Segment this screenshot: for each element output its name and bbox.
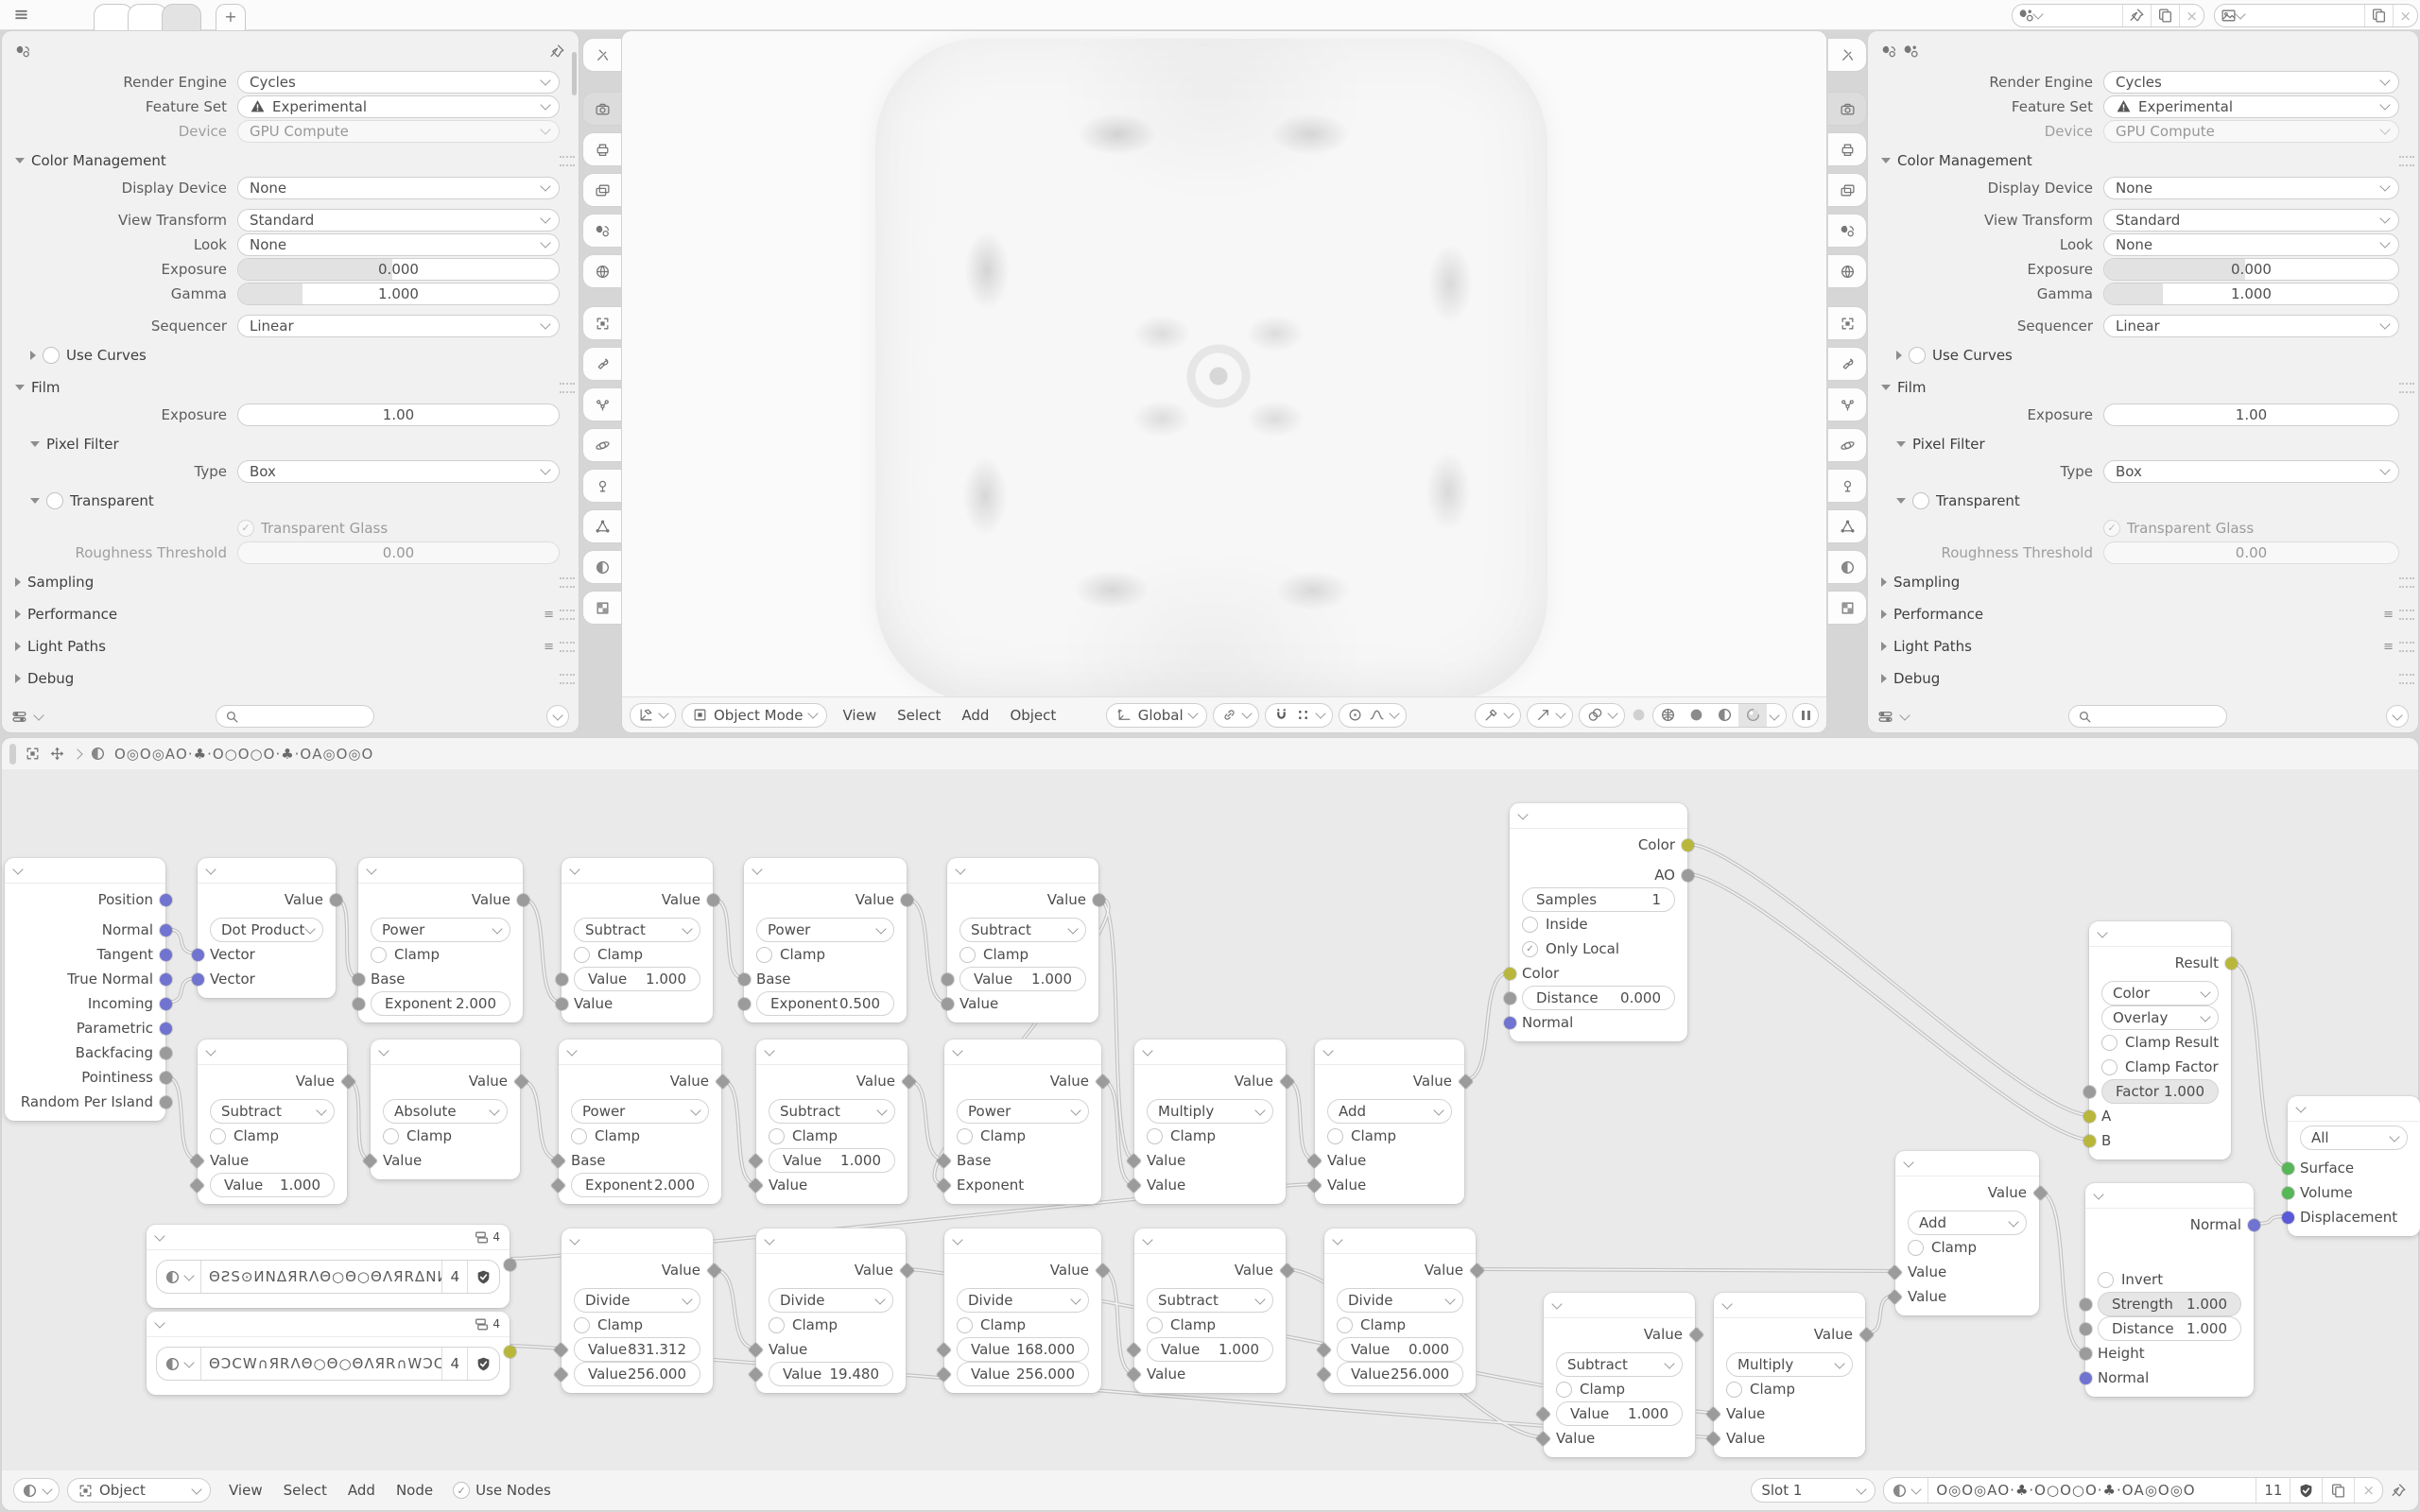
node-power1[interactable]: ValuePowerClampBaseExponent2.000 xyxy=(358,858,523,1022)
node-header[interactable] xyxy=(1895,1151,2039,1177)
section-performance[interactable]: Performance≡ xyxy=(1868,600,2414,628)
node-header[interactable] xyxy=(756,1039,907,1065)
output-socket-value[interactable] xyxy=(330,894,342,906)
operation-dropdown[interactable]: Subtract xyxy=(210,1099,335,1124)
users-count[interactable]: 11 xyxy=(2256,1478,2290,1503)
node-add1[interactable]: ValueAddClampValueValue xyxy=(1315,1039,1464,1204)
output-socket-position[interactable] xyxy=(160,894,172,906)
input-socket-value[interactable] xyxy=(942,973,954,986)
properties-tab-material[interactable] xyxy=(582,550,621,584)
section-sampling[interactable]: Sampling xyxy=(1868,568,2414,596)
output-socket-parametric[interactable] xyxy=(160,1022,172,1035)
node-pow05[interactable]: ValuePowerClampBaseExponent0.500 xyxy=(744,858,907,1022)
checkbox-clamp[interactable] xyxy=(756,947,772,963)
output-socket-value[interactable] xyxy=(1093,894,1105,906)
snap-target-dropdown[interactable] xyxy=(1213,703,1259,728)
input-socket-surface[interactable] xyxy=(2282,1162,2294,1175)
section-checkbox[interactable] xyxy=(46,492,63,509)
input-socket-value[interactable] xyxy=(556,998,568,1010)
value-field-exponent[interactable]: Exponent2.000 xyxy=(371,991,510,1016)
editor-type-dropdown[interactable] xyxy=(630,703,676,728)
select-display-device[interactable]: None xyxy=(237,177,560,199)
input-socket-value[interactable] xyxy=(556,973,568,986)
select-feature-set[interactable]: Experimental xyxy=(2103,95,2399,118)
checkbox-only-local[interactable]: ✓ xyxy=(1522,941,1538,957)
node-header[interactable] xyxy=(2085,1183,2254,1209)
node-header[interactable] xyxy=(1134,1039,1286,1065)
output-socket-incoming[interactable] xyxy=(160,998,172,1010)
input-socket-vector[interactable] xyxy=(192,949,204,961)
fake-user-button[interactable] xyxy=(467,1261,499,1293)
value-field-value[interactable]: Value256.000 xyxy=(957,1362,1089,1386)
collapse-icon[interactable] xyxy=(205,864,216,874)
value-field-factor[interactable]: Factor1.000 xyxy=(2101,1079,2219,1104)
checkbox-clamp[interactable] xyxy=(957,1317,973,1333)
operation-dropdown[interactable]: Divide xyxy=(574,1288,700,1313)
shading-rendered-button[interactable] xyxy=(1738,704,1767,727)
output-socket-ao[interactable] xyxy=(1682,869,1694,882)
section-light-paths[interactable]: Light Paths≡ xyxy=(1868,632,2414,661)
value-field-value[interactable]: Value1.000 xyxy=(574,967,700,991)
node-sub2[interactable]: ValueSubtractClampValue1.000Value xyxy=(947,858,1098,1022)
checkbox-invert[interactable] xyxy=(2098,1272,2114,1288)
rendered-object[interactable] xyxy=(875,39,1547,697)
operation-dropdown[interactable]: Subtract xyxy=(769,1099,895,1124)
value-field-exponent[interactable]: Exponent2.000 xyxy=(571,1173,709,1197)
node-header[interactable] xyxy=(5,858,165,884)
operation-dropdown[interactable]: Power xyxy=(756,918,894,942)
input-socket-strength[interactable] xyxy=(2080,1298,2092,1311)
input-socket-value[interactable] xyxy=(942,998,954,1010)
value-field-exponent[interactable]: Exponent0.500 xyxy=(756,991,894,1016)
orientation-dropdown[interactable]: Global xyxy=(1106,703,1207,728)
menu-add[interactable]: Add xyxy=(951,707,999,724)
reference-name-field[interactable]: ΘƧS⊙ИΝΔЯRΛΘ○Θ○ΘΛЯRΔΝИ⊙SƧΘ xyxy=(200,1261,441,1293)
operation-dropdown[interactable]: Power xyxy=(957,1099,1089,1124)
node-header[interactable] xyxy=(944,1228,1101,1254)
checkbox-clamp[interactable] xyxy=(383,1128,399,1144)
collapse-icon[interactable] xyxy=(566,1045,577,1056)
input-socket-normal[interactable] xyxy=(2080,1372,2092,1384)
node-header[interactable] xyxy=(371,1039,520,1065)
node-output[interactable]: AllSurfaceVolumeDisplacement xyxy=(2288,1096,2420,1236)
select-type[interactable]: Box xyxy=(237,460,560,483)
collapse-icon[interactable] xyxy=(12,864,23,874)
properties-tab-physics[interactable] xyxy=(1828,428,1867,462)
section-pixel-filter[interactable]: Pixel Filter xyxy=(1868,430,2414,458)
input-socket-a[interactable] xyxy=(2083,1110,2096,1123)
node-header[interactable] xyxy=(1544,1293,1695,1318)
id-name-field[interactable] xyxy=(2048,5,2122,26)
properties-tab-modifiers[interactable] xyxy=(1828,347,1867,381)
checkbox-clamp[interactable] xyxy=(1147,1317,1163,1333)
viewport-canvas[interactable] xyxy=(622,31,1826,697)
properties-tab-object[interactable] xyxy=(582,306,621,340)
unlink-button[interactable]: × xyxy=(2393,5,2417,26)
pause-button[interactable] xyxy=(1792,703,1819,728)
select-look[interactable]: None xyxy=(2103,233,2399,256)
section-debug[interactable]: Debug xyxy=(1868,664,2414,693)
operation-dropdown[interactable]: Add xyxy=(1327,1099,1452,1124)
node-header[interactable] xyxy=(947,858,1098,884)
checkbox-clamp[interactable] xyxy=(1147,1128,1163,1144)
fake-user-button[interactable] xyxy=(2290,1478,2322,1503)
material-name-field[interactable]: Ο◎Ο◎ΑΟ·♣·Ο○Ο○Ο·♣·ΟΑ◎Ο◎Ο xyxy=(1927,1478,2256,1503)
select-type[interactable]: Box xyxy=(2103,460,2399,483)
properties-tab-texture[interactable] xyxy=(1828,591,1867,625)
fake-user-button[interactable] xyxy=(467,1348,499,1380)
collapse-icon[interactable] xyxy=(154,1230,164,1241)
checkbox-clamp[interactable] xyxy=(959,947,976,963)
menu-select[interactable]: Select xyxy=(887,707,951,724)
select-render-engine[interactable]: Cycles xyxy=(237,71,560,94)
menu-select[interactable]: Select xyxy=(273,1482,337,1499)
app-menu-icon[interactable] xyxy=(13,7,29,23)
users-count[interactable]: 4 xyxy=(441,1348,467,1380)
checkbox-transparent-glass[interactable]: ✓ xyxy=(237,520,254,537)
input-socket-factor[interactable] xyxy=(2083,1086,2096,1098)
collapse-icon[interactable] xyxy=(205,1045,216,1056)
operation-dropdown[interactable]: Multiply xyxy=(1726,1352,1853,1377)
section-film[interactable]: Film xyxy=(2,373,575,402)
slider-gamma[interactable]: 1.000 xyxy=(237,283,560,305)
checkbox-clamp[interactable] xyxy=(1327,1128,1343,1144)
search-input[interactable] xyxy=(2068,705,2227,728)
menu-view[interactable]: View xyxy=(218,1482,273,1499)
select-look[interactable]: None xyxy=(237,233,560,256)
value-field-distance[interactable]: Distance1.000 xyxy=(2098,1316,2241,1341)
collapse-icon[interactable] xyxy=(2093,1189,2103,1199)
node-header[interactable] xyxy=(198,858,336,884)
slider-roughness-threshold[interactable]: 0.00 xyxy=(237,541,560,564)
output-socket-color[interactable] xyxy=(1682,839,1694,851)
input-socket-base[interactable] xyxy=(353,973,365,986)
select-view-transform[interactable]: Standard xyxy=(2103,209,2399,232)
properties-tab-object[interactable] xyxy=(1828,306,1867,340)
section-light-paths[interactable]: Light Paths≡ xyxy=(2,632,575,661)
value-field-value[interactable]: Value1.000 xyxy=(1556,1401,1683,1426)
operation-dropdown[interactable]: Subtract xyxy=(574,918,700,942)
node-header[interactable]: 4 xyxy=(147,1312,510,1337)
node-add2[interactable]: ValueAddClampValueValue xyxy=(1895,1151,2039,1315)
input-socket-vector[interactable] xyxy=(192,973,204,986)
input-socket-normal[interactable] xyxy=(1504,1017,1516,1029)
value-field-value[interactable]: Value256.000 xyxy=(1337,1362,1463,1386)
proportional-editing-dropdown[interactable] xyxy=(1339,703,1407,728)
node-sub4[interactable]: ValueSubtractClampValue1.000Value xyxy=(756,1039,907,1204)
checkbox-inside[interactable] xyxy=(1522,917,1538,933)
slider-exposure[interactable]: 0.000 xyxy=(237,258,560,281)
value-field-value[interactable]: Value1.000 xyxy=(210,1173,335,1197)
operation-dropdown[interactable]: Divide xyxy=(957,1288,1089,1313)
output-socket-pointiness[interactable] xyxy=(160,1072,172,1084)
properties-tab-world[interactable] xyxy=(582,254,621,288)
section-sampling[interactable]: Sampling xyxy=(2,568,575,596)
input-socket-exponent[interactable] xyxy=(353,998,365,1010)
pin-icon[interactable] xyxy=(549,43,565,60)
value-field-value[interactable]: Value1.000 xyxy=(959,967,1086,991)
slider-exposure[interactable]: 0.000 xyxy=(2103,258,2399,281)
properties-tab-texture[interactable] xyxy=(582,591,621,625)
input-socket-distance[interactable] xyxy=(2080,1323,2092,1335)
collapse-icon[interactable] xyxy=(952,1234,962,1245)
properties-tab-scene[interactable] xyxy=(582,214,621,248)
output-socket-value[interactable] xyxy=(707,894,719,906)
checkbox-clamp[interactable] xyxy=(769,1128,785,1144)
properties-tab-constraints[interactable] xyxy=(582,469,621,503)
value-field-value[interactable]: Value1.000 xyxy=(1147,1337,1273,1362)
unlink-button[interactable]: × xyxy=(2179,5,2204,26)
collapse-icon[interactable] xyxy=(569,864,579,874)
node-header[interactable] xyxy=(944,1039,1101,1065)
operation-dropdown[interactable]: Color xyxy=(2101,981,2219,1005)
shading-solid-button[interactable] xyxy=(1682,704,1710,727)
value-field-value[interactable]: Value1.000 xyxy=(769,1148,895,1173)
options-button[interactable] xyxy=(546,705,569,728)
collapse-icon[interactable] xyxy=(764,1234,774,1245)
checkbox-clamp[interactable] xyxy=(210,1128,226,1144)
checkbox-clamp[interactable] xyxy=(574,947,590,963)
input-socket-exponent[interactable] xyxy=(738,998,751,1010)
section-color-management[interactable]: Color Management xyxy=(1868,146,2414,175)
section-color-management[interactable]: Color Management xyxy=(2,146,575,175)
select-feature-set[interactable]: Experimental xyxy=(237,95,560,118)
properties-tab-output[interactable] xyxy=(582,132,621,166)
collapse-icon[interactable] xyxy=(154,1317,164,1328)
value-field-strength[interactable]: Strength1.000 xyxy=(2098,1292,2241,1316)
output-socket[interactable] xyxy=(504,1346,516,1358)
collapse-icon[interactable] xyxy=(952,1045,962,1056)
output-socket-value[interactable] xyxy=(901,894,913,906)
operation-dropdown[interactable]: Absolute xyxy=(383,1099,508,1124)
output-socket-tangent[interactable] xyxy=(160,949,172,961)
operation-dropdown[interactable]: Subtract xyxy=(959,918,1086,942)
checkbox-transparent-glass[interactable]: ✓ xyxy=(2103,520,2120,537)
select-device[interactable]: GPU Compute xyxy=(237,120,560,143)
section-checkbox[interactable] xyxy=(43,347,60,364)
properties-tab-render[interactable] xyxy=(582,92,621,126)
material-type-dropdown[interactable] xyxy=(157,1261,200,1293)
value-field-value[interactable]: Value0.000 xyxy=(1337,1337,1463,1362)
shader-type-dropdown[interactable]: Object xyxy=(67,1478,211,1503)
filter-icon[interactable] xyxy=(1877,709,1893,725)
collapse-icon[interactable] xyxy=(764,1045,774,1056)
overlays-dropdown[interactable] xyxy=(1579,703,1625,728)
operation-dropdown[interactable]: All xyxy=(2300,1125,2408,1150)
node-header[interactable] xyxy=(562,858,713,884)
node-bump[interactable]: NormalInvertStrength1.000Distance1.000He… xyxy=(2085,1183,2254,1397)
options-button[interactable] xyxy=(2386,705,2409,728)
slider-roughness-threshold[interactable]: 0.00 xyxy=(2103,541,2399,564)
properties-tab-tool[interactable] xyxy=(1828,38,1867,72)
node-header[interactable]: 4 xyxy=(147,1225,510,1250)
search-input[interactable] xyxy=(216,705,374,728)
section-performance[interactable]: Performance≡ xyxy=(2,600,575,628)
material-type-dropdown[interactable] xyxy=(1884,1478,1927,1503)
checkbox-clamp[interactable] xyxy=(571,1128,587,1144)
properties-tab-constraints[interactable] xyxy=(1828,469,1867,503)
output-socket-normal[interactable] xyxy=(160,924,172,936)
value-field-distance[interactable]: Distance0.000 xyxy=(1522,986,1675,1010)
value-field-value[interactable]: Value168.000 xyxy=(957,1337,1089,1362)
node-sub6[interactable]: ValueSubtractClampValue1.000Value xyxy=(1544,1293,1695,1457)
slider-exposure[interactable]: 1.00 xyxy=(237,404,560,426)
node-header[interactable] xyxy=(358,858,523,884)
node-div2[interactable]: ValueDivideClampValueValue19.480 xyxy=(756,1228,906,1393)
collapse-icon[interactable] xyxy=(1142,1234,1152,1245)
use-nodes-checkbox[interactable]: ✓ xyxy=(453,1482,470,1499)
input-socket-color[interactable] xyxy=(1504,968,1516,980)
menu-view[interactable]: View xyxy=(833,707,888,724)
properties-tab-particles[interactable] xyxy=(582,387,621,421)
operation-dropdown[interactable]: Multiply xyxy=(1147,1099,1273,1124)
node-header[interactable] xyxy=(2089,921,2231,947)
collapse-icon[interactable] xyxy=(1721,1298,1732,1309)
shading-material-button[interactable] xyxy=(1710,704,1738,727)
output-socket-normal[interactable] xyxy=(2248,1219,2260,1231)
properties-tab-world[interactable] xyxy=(1828,254,1867,288)
checkbox-clamp[interactable] xyxy=(1726,1382,1742,1398)
node-header[interactable] xyxy=(1510,803,1687,829)
visibility-dropdown[interactable] xyxy=(1475,703,1521,728)
collapse-icon[interactable] xyxy=(1332,1234,1342,1245)
section-transparent[interactable]: Transparent xyxy=(1868,487,2414,515)
properties-tab-output[interactable] xyxy=(1828,132,1867,166)
properties-tab-object-data[interactable] xyxy=(1828,509,1867,543)
collapse-icon[interactable] xyxy=(1903,1157,1913,1167)
operation-dropdown[interactable]: Subtract xyxy=(1147,1288,1273,1313)
slider-exposure[interactable]: 1.00 xyxy=(2103,404,2399,426)
collapse-icon[interactable] xyxy=(1322,1045,1333,1056)
image-type-dropdown[interactable] xyxy=(2215,5,2250,26)
slider-gamma[interactable]: 1.000 xyxy=(2103,283,2399,305)
properties-tab-particles[interactable] xyxy=(1828,387,1867,421)
properties-tab-render[interactable] xyxy=(1828,92,1867,126)
value-field-value[interactable]: Value831.312 xyxy=(574,1337,700,1362)
scrollbar[interactable] xyxy=(572,52,577,95)
node-mul1[interactable]: ValueMultiplyClampValueValue xyxy=(1134,1039,1286,1204)
node-sub1[interactable]: ValueSubtractClampValue1.000Value xyxy=(562,858,713,1022)
select-sequencer[interactable]: Linear xyxy=(237,315,560,337)
users-count[interactable]: 4 xyxy=(441,1261,467,1293)
filter-icon[interactable] xyxy=(11,709,27,725)
collapse-icon[interactable] xyxy=(569,1234,579,1245)
output-socket-result[interactable] xyxy=(2225,957,2238,970)
node-geometry[interactable]: PositionNormalTangentTrue NormalIncoming… xyxy=(5,858,165,1121)
node-header[interactable] xyxy=(562,1228,713,1254)
node-div3[interactable]: ValueDivideClampValue168.000Value256.000 xyxy=(944,1228,1101,1393)
material-type-dropdown[interactable] xyxy=(157,1348,200,1380)
gizmos-dropdown[interactable] xyxy=(1527,703,1573,728)
new-workspace-button[interactable]: + xyxy=(216,4,246,30)
image-name-field[interactable] xyxy=(2250,5,2364,26)
collapse-icon[interactable] xyxy=(1142,1045,1152,1056)
properties-tab-view-layer[interactable] xyxy=(582,173,621,207)
checkbox-clamp[interactable] xyxy=(769,1317,785,1333)
copy-button[interactable] xyxy=(2151,5,2179,26)
pin-icon[interactable] xyxy=(2391,1483,2407,1499)
checkbox-clamp[interactable] xyxy=(1337,1317,1353,1333)
properties-tab-scene[interactable] xyxy=(1828,214,1867,248)
workspace-tab-3[interactable] xyxy=(162,4,201,30)
value-field-samples[interactable]: Samples1 xyxy=(1522,887,1675,912)
checkbox-clamp-factor[interactable] xyxy=(2101,1059,2117,1075)
section-use-curves[interactable]: Use Curves xyxy=(1868,341,2414,369)
mode-dropdown[interactable]: Object Mode xyxy=(682,703,827,728)
node-header[interactable] xyxy=(1324,1228,1476,1254)
section-checkbox[interactable] xyxy=(1909,347,1926,364)
reference-name-field[interactable]: ΘƆCW∩ЯRΛΘ○Θ○ΘΛЯR∩WƆCΘ xyxy=(200,1348,441,1380)
operation-dropdown[interactable]: Subtract xyxy=(1556,1352,1683,1377)
xray-toggle-icon[interactable] xyxy=(1631,707,1647,723)
properties-tab-material[interactable] xyxy=(1828,550,1867,584)
section-transparent[interactable]: Transparent xyxy=(2,487,575,515)
input-socket-distance[interactable] xyxy=(1504,992,1516,1005)
collapse-icon[interactable] xyxy=(2295,1102,2306,1112)
checkbox-clamp[interactable] xyxy=(957,1128,973,1144)
collapse-icon[interactable] xyxy=(1551,1298,1562,1309)
select-display-device[interactable]: None xyxy=(2103,177,2399,199)
section-film[interactable]: Film xyxy=(1868,373,2414,402)
copy-button[interactable] xyxy=(2364,5,2393,26)
operation-dropdown[interactable]: Divide xyxy=(769,1288,893,1313)
checkbox-clamp[interactable] xyxy=(371,947,387,963)
operation-dropdown[interactable]: Power xyxy=(371,918,510,942)
select-sequencer[interactable]: Linear xyxy=(2103,315,2399,337)
collapse-icon[interactable] xyxy=(752,864,762,874)
value-field-value[interactable]: Value19.480 xyxy=(769,1362,893,1386)
output-socket-random per island[interactable] xyxy=(160,1096,172,1108)
menu-node[interactable]: Node xyxy=(386,1482,443,1499)
checkbox-clamp[interactable] xyxy=(574,1317,590,1333)
section-pixel-filter[interactable]: Pixel Filter xyxy=(2,430,575,458)
shader-editor-type-dropdown[interactable] xyxy=(13,1478,60,1503)
menu-object[interactable]: Object xyxy=(999,707,1066,724)
input-socket-b[interactable] xyxy=(2083,1135,2096,1147)
node-refB[interactable]: 4ΘƆCW∩ЯRΛΘ○Θ○ΘΛЯR∩WƆCΘ4 xyxy=(147,1312,510,1395)
checkbox-clamp[interactable] xyxy=(1556,1382,1572,1398)
menu-add[interactable]: Add xyxy=(337,1482,386,1499)
input-socket-displacement[interactable] xyxy=(2282,1211,2294,1224)
section-debug[interactable]: Debug xyxy=(2,664,575,693)
node-div4[interactable]: ValueDivideClampValue0.000Value256.000 xyxy=(1324,1228,1476,1393)
collapse-icon[interactable] xyxy=(378,1045,389,1056)
slot-dropdown[interactable]: Slot 1 xyxy=(1751,1478,1875,1503)
section-checkbox[interactable] xyxy=(1912,492,1929,509)
id-type-dropdown[interactable] xyxy=(2013,5,2048,26)
node-mul2[interactable]: ValueMultiplyClampValueValue xyxy=(1714,1293,1865,1457)
output-socket-true normal[interactable] xyxy=(160,973,172,986)
node-header[interactable] xyxy=(559,1039,721,1065)
section-use-curves[interactable]: Use Curves xyxy=(2,341,575,369)
node-mix[interactable]: ResultColorOverlayClamp ResultClamp Fact… xyxy=(2089,921,2231,1160)
output-socket-value[interactable] xyxy=(517,894,529,906)
select-render-engine[interactable]: Cycles xyxy=(2103,71,2399,94)
node-abs1[interactable]: ValueAbsoluteClampValue xyxy=(371,1039,520,1179)
node-header[interactable] xyxy=(1315,1039,1464,1065)
node-header[interactable] xyxy=(2288,1096,2420,1122)
operation-dropdown[interactable]: Divide xyxy=(1337,1288,1463,1313)
collapse-icon[interactable] xyxy=(1517,809,1528,819)
node-header[interactable] xyxy=(198,1039,347,1065)
output-socket[interactable] xyxy=(504,1259,516,1271)
resize-grip[interactable] xyxy=(9,744,16,765)
collapse-icon[interactable] xyxy=(2097,927,2107,937)
properties-tab-physics[interactable] xyxy=(582,428,621,462)
properties-tab-tool[interactable] xyxy=(582,38,621,72)
node-header[interactable] xyxy=(1714,1293,1865,1318)
node-div1[interactable]: ValueDivideClampValue831.312Value256.000 xyxy=(562,1228,713,1393)
